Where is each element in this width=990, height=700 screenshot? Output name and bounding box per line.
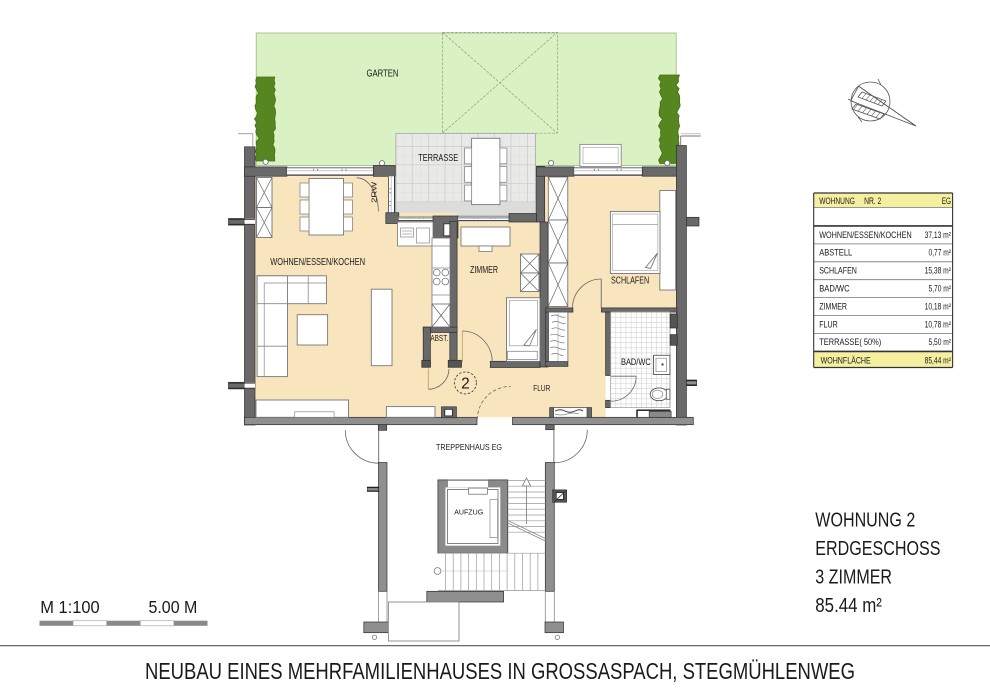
svg-text:FLUR: FLUR bbox=[819, 319, 838, 329]
svg-text:NEUBAU EINES MEHRFAMILIENHAUSE: NEUBAU EINES MEHRFAMILIENHAUSES IN GROSS… bbox=[145, 658, 855, 684]
svg-text:ERDGESCHOSS: ERDGESCHOSS bbox=[815, 537, 940, 560]
svg-text:TERRASSE: TERRASSE bbox=[418, 153, 458, 164]
svg-text:FLUR: FLUR bbox=[533, 383, 550, 393]
svg-text:WOHNUNG: WOHNUNG bbox=[819, 196, 855, 206]
svg-text:WOHNEN/ESSEN/KOCHEN: WOHNEN/ESSEN/KOCHEN bbox=[819, 230, 912, 240]
svg-text:2RW: 2RW bbox=[370, 182, 379, 203]
svg-text:10,78 m²: 10,78 m² bbox=[925, 319, 951, 329]
svg-text:0,77 m²: 0,77 m² bbox=[929, 248, 952, 258]
svg-text:TERRASSE( 50%): TERRASSE( 50%) bbox=[819, 337, 881, 347]
svg-text:AUFZUG: AUFZUG bbox=[454, 508, 483, 517]
svg-text:SCHLAFEN: SCHLAFEN bbox=[819, 266, 857, 276]
svg-text:5,70 m²: 5,70 m² bbox=[929, 284, 952, 294]
svg-text:ZIMMER: ZIMMER bbox=[819, 301, 847, 311]
svg-text:ABST.: ABST. bbox=[430, 334, 448, 343]
svg-text:WOHNUNG 2: WOHNUNG 2 bbox=[815, 508, 915, 531]
svg-text:2: 2 bbox=[461, 376, 470, 393]
svg-text:WOHNEN/ESSEN/KOCHEN: WOHNEN/ESSEN/KOCHEN bbox=[270, 256, 365, 268]
svg-text:SCHLAFEN: SCHLAFEN bbox=[611, 275, 649, 286]
svg-text:EG: EG bbox=[942, 196, 951, 206]
svg-text:5.00 M: 5.00 M bbox=[149, 597, 198, 617]
svg-text:BAD/WC: BAD/WC bbox=[819, 284, 850, 294]
svg-text:WOHNFLÄCHE: WOHNFLÄCHE bbox=[821, 355, 871, 365]
svg-text:NR. 2: NR. 2 bbox=[864, 196, 881, 206]
svg-text:M 1:100: M 1:100 bbox=[40, 597, 99, 617]
svg-text:ZIMMER: ZIMMER bbox=[470, 265, 498, 276]
svg-text:3 ZIMMER: 3 ZIMMER bbox=[815, 566, 892, 589]
svg-text:GARTEN: GARTEN bbox=[367, 68, 399, 80]
svg-text:ABSTELL: ABSTELL bbox=[819, 248, 852, 258]
svg-text:85.44 m²: 85.44 m² bbox=[815, 594, 882, 617]
svg-text:15,38 m²: 15,38 m² bbox=[925, 266, 951, 276]
svg-text:85,44 m²: 85,44 m² bbox=[925, 355, 951, 365]
svg-text:37,13 m²: 37,13 m² bbox=[925, 230, 951, 240]
svg-text:10,18 m²: 10,18 m² bbox=[925, 301, 951, 311]
svg-text:5,50 m²: 5,50 m² bbox=[929, 337, 952, 347]
svg-text:BAD/WC: BAD/WC bbox=[621, 357, 651, 368]
svg-text:TREPPENHAUS EG: TREPPENHAUS EG bbox=[436, 442, 502, 452]
